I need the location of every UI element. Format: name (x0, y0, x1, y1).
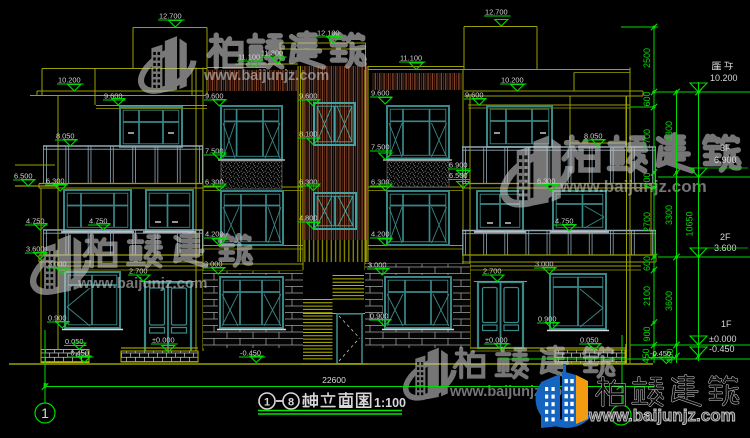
svg-text:10.200: 10.200 (501, 76, 524, 85)
svg-text:www.baijunjz.com: www.baijunjz.com (588, 406, 736, 425)
svg-text:2700: 2700 (642, 129, 652, 149)
svg-text:3300: 3300 (664, 205, 674, 225)
svg-text:12.700: 12.700 (159, 12, 182, 21)
svg-text:7.500: 7.500 (371, 143, 390, 152)
svg-text:3600: 3600 (664, 291, 674, 311)
svg-text:8.100: 8.100 (299, 130, 318, 139)
svg-text:900: 900 (642, 326, 652, 341)
svg-text:2.700: 2.700 (129, 267, 148, 276)
svg-text:4.750: 4.750 (26, 217, 45, 226)
svg-text:4.200: 4.200 (205, 230, 224, 239)
svg-text:www.baijunjz.com: www.baijunjz.com (559, 177, 707, 196)
svg-text:2700: 2700 (642, 212, 652, 232)
svg-text:2500: 2500 (642, 48, 652, 68)
svg-text:3300: 3300 (664, 121, 674, 141)
svg-text:8: 8 (288, 397, 294, 409)
svg-text:2.700: 2.700 (483, 267, 502, 276)
svg-text:600: 600 (642, 91, 652, 106)
svg-text:1: 1 (264, 397, 270, 409)
svg-text:10650: 10650 (685, 211, 695, 236)
svg-text:±0.000: ±0.000 (709, 334, 736, 344)
svg-text:11.100: 11.100 (400, 54, 422, 63)
svg-text:6.500: 6.500 (449, 171, 468, 180)
svg-text:11.300: 11.300 (261, 49, 283, 58)
svg-text:6.900: 6.900 (449, 161, 468, 170)
svg-text:600: 600 (642, 172, 652, 187)
svg-text:22600: 22600 (322, 375, 346, 385)
svg-text:www.baijunjz.com: www.baijunjz.com (203, 68, 329, 84)
svg-text:-0.450: -0.450 (709, 344, 735, 354)
svg-text:6.900: 6.900 (714, 155, 737, 165)
svg-text:9.600: 9.600 (104, 92, 123, 101)
svg-text:3F: 3F (720, 143, 731, 153)
svg-text:4.750: 4.750 (89, 217, 108, 226)
svg-text:2F: 2F (720, 232, 731, 242)
svg-text:11.100: 11.100 (238, 53, 260, 62)
svg-text:10.200: 10.200 (58, 76, 81, 85)
svg-text:12.700: 12.700 (485, 8, 508, 17)
svg-text:9.600: 9.600 (371, 89, 390, 98)
svg-text:1F: 1F (721, 319, 732, 329)
svg-text:1:100: 1:100 (374, 396, 406, 410)
svg-text:4.200: 4.200 (371, 230, 390, 239)
svg-text:2100: 2100 (642, 286, 652, 306)
svg-text:1: 1 (41, 405, 49, 421)
svg-text:10.200: 10.200 (710, 73, 738, 83)
svg-text:www.baijunjz.com: www.baijunjz.com (77, 275, 207, 292)
svg-text:4.800: 4.800 (299, 214, 318, 223)
svg-text:±0.000: ±0.000 (152, 336, 175, 345)
svg-text:600: 600 (642, 256, 652, 271)
